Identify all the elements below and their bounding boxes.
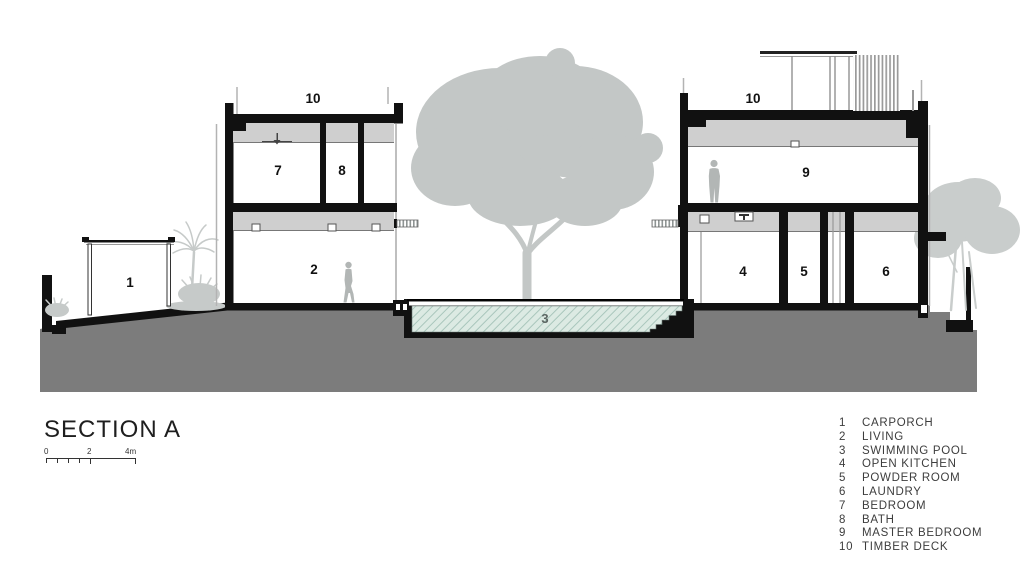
wall-powder-shaft bbox=[820, 203, 828, 310]
roof-rail-post bbox=[912, 90, 914, 111]
legend-number: 6 bbox=[839, 486, 862, 500]
legend-label: SWIMMING POOL bbox=[862, 445, 968, 459]
scale-ruler bbox=[46, 458, 136, 464]
label-timber-deck-right: 10 bbox=[745, 91, 760, 106]
awning-right bbox=[918, 232, 946, 241]
boundary-wall-right bbox=[966, 267, 971, 330]
legend-row: 5 POWDER ROOM bbox=[839, 472, 982, 486]
right-building-roof-slab bbox=[680, 110, 928, 120]
roof-louver-screen bbox=[853, 55, 900, 111]
legend-row: 4 OPEN KITCHEN bbox=[839, 458, 982, 472]
left-building-east-parapet bbox=[394, 103, 403, 123]
legend-label: MASTER BEDROOM bbox=[862, 527, 982, 541]
scale-tick bbox=[90, 459, 91, 464]
legend-number: 1 bbox=[839, 417, 862, 431]
downlight-notch-kitchen bbox=[700, 215, 709, 223]
section-drawing-page: 1 2 3 4 5 6 7 8 9 10 10 SECTION A 0 2 4m bbox=[0, 0, 1024, 583]
exhaust-fan-kitchen bbox=[735, 212, 753, 221]
legend-row: 10 TIMBER DECK bbox=[839, 541, 982, 555]
carporch-column-right bbox=[167, 244, 171, 306]
label-swimming-pool: 3 bbox=[541, 311, 548, 326]
right-building-west-wall bbox=[680, 93, 688, 310]
label-timber-deck-left: 10 bbox=[305, 91, 320, 106]
legend-row: 9 MASTER BEDROOM bbox=[839, 527, 982, 541]
roof-slab-step-l bbox=[688, 120, 706, 127]
scale-tick bbox=[57, 459, 58, 463]
louver-grille-right-bldg bbox=[652, 220, 678, 227]
left-building-mid-slab bbox=[225, 203, 397, 212]
page-title: SECTION A bbox=[44, 416, 181, 444]
door-track-2 bbox=[328, 224, 336, 231]
tree-middle bbox=[411, 48, 663, 310]
legend-number: 8 bbox=[839, 514, 862, 528]
label-bedroom: 7 bbox=[274, 163, 282, 178]
left-building-roof-slab bbox=[225, 114, 403, 124]
louver-grille-left-bldg bbox=[397, 220, 418, 227]
scale-tick bbox=[79, 459, 80, 463]
retaining-wall-left bbox=[42, 275, 52, 332]
carporch-column-left bbox=[88, 244, 92, 315]
label-bath: 8 bbox=[338, 163, 346, 178]
legend-number: 3 bbox=[839, 445, 862, 459]
legend-number: 9 bbox=[839, 527, 862, 541]
penthouse-roof bbox=[760, 51, 857, 54]
roof-slab-step bbox=[233, 123, 246, 131]
legend-row: 7 BEDROOM bbox=[839, 500, 982, 514]
label-carporch: 1 bbox=[126, 275, 134, 290]
label-laundry: 6 bbox=[882, 264, 890, 279]
legend-row: 6 LAUNDRY bbox=[839, 486, 982, 500]
legend-label: OPEN KITCHEN bbox=[862, 458, 957, 472]
bath-wall-right bbox=[358, 123, 364, 207]
label-living: 2 bbox=[310, 262, 318, 277]
right-building-floor-slab bbox=[680, 303, 928, 311]
scale-tick bbox=[68, 459, 69, 463]
pool-curb-left bbox=[393, 300, 410, 316]
legend-label: LAUNDRY bbox=[862, 486, 922, 500]
scale-bar: 0 2 4m bbox=[46, 447, 142, 465]
legend-label: POWDER ROOM bbox=[862, 472, 960, 486]
legend-number: 5 bbox=[839, 472, 862, 486]
person-standing-master-bedroom bbox=[709, 160, 720, 203]
legend-number: 10 bbox=[839, 541, 862, 555]
door-track-1 bbox=[252, 224, 260, 231]
label-powder-room: 5 bbox=[800, 264, 808, 279]
legend-number: 2 bbox=[839, 431, 862, 445]
right-building bbox=[652, 78, 946, 318]
wall-shaft-laundry bbox=[845, 203, 854, 310]
legend-row: 8 BATH bbox=[839, 514, 982, 528]
ceiling-band-lower-right-bldg bbox=[688, 212, 918, 231]
legend-label: BATH bbox=[862, 514, 895, 528]
label-master-bedroom: 9 bbox=[802, 165, 810, 180]
left-building-floor-slab bbox=[225, 303, 403, 311]
bath-wall-left bbox=[320, 123, 326, 207]
pool-deck-line bbox=[407, 299, 684, 301]
legend-label: BEDROOM bbox=[862, 500, 926, 514]
roof-slab-step-r bbox=[906, 120, 920, 138]
ceiling-band-upper-right-bldg bbox=[688, 120, 918, 146]
label-open-kitchen: 4 bbox=[739, 264, 747, 279]
scale-label-0: 0 bbox=[44, 447, 48, 456]
curb-drain-1 bbox=[396, 304, 400, 310]
roof-penthouse bbox=[760, 51, 914, 111]
legend-number: 4 bbox=[839, 458, 862, 472]
downlight-notch-master bbox=[791, 141, 799, 147]
room-legend: 1 CARPORCH 2 LIVING 3 SWIMMING POOL 4 OP… bbox=[839, 417, 982, 555]
legend-label: CARPORCH bbox=[862, 417, 933, 431]
weep-hole bbox=[921, 305, 927, 313]
wall-kitchen-powder bbox=[779, 203, 788, 310]
ceiling-band-upper-left-bldg bbox=[233, 123, 394, 142]
legend-number: 7 bbox=[839, 500, 862, 514]
scale-tick bbox=[135, 459, 136, 464]
scale-label-2: 2 bbox=[87, 447, 91, 456]
right-building-mid-slab bbox=[680, 203, 928, 212]
legend-label: LIVING bbox=[862, 431, 904, 445]
legend-row: 3 SWIMMING POOL bbox=[839, 445, 982, 459]
curb-drain-2 bbox=[403, 304, 407, 310]
legend-label: TIMBER DECK bbox=[862, 541, 948, 555]
legend-row: 1 CARPORCH bbox=[839, 417, 982, 431]
scale-tick bbox=[46, 459, 47, 463]
carporch-roof bbox=[84, 240, 174, 243]
door-track-3 bbox=[372, 224, 380, 231]
person-walking-living bbox=[344, 262, 355, 303]
pool-coping bbox=[409, 302, 683, 306]
scale-label-4m: 4m bbox=[125, 447, 136, 456]
legend-row: 2 LIVING bbox=[839, 431, 982, 445]
